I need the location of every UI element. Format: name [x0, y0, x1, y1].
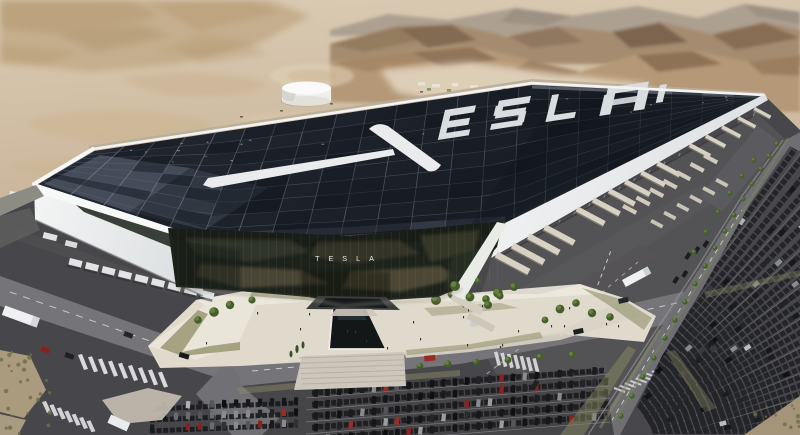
svg-text:TESLA: TESLA	[315, 254, 383, 263]
